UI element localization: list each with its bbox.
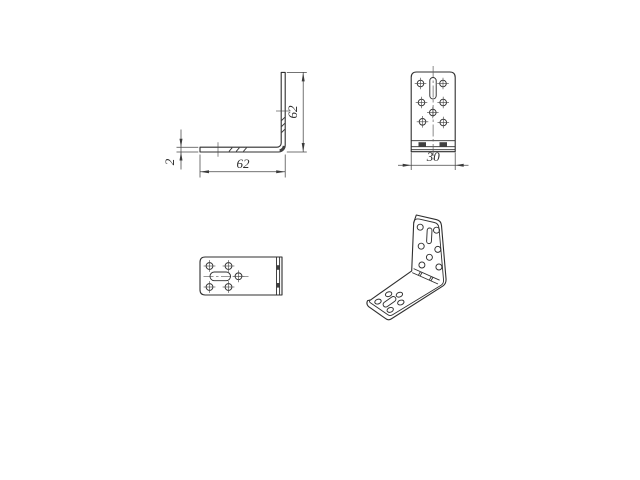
dim-height: 62 (285, 72, 307, 152)
arrowhead (403, 164, 412, 167)
slot-edge-mark (419, 142, 427, 146)
front-view: 30 (398, 66, 469, 170)
arrowhead (302, 72, 305, 81)
dim-height-label: 62 (285, 105, 300, 119)
dim-length-label: 62 (237, 156, 251, 171)
isometric-view (367, 215, 446, 320)
slot-edge-mark (277, 265, 280, 270)
top-view (200, 257, 282, 295)
dim-width: 30 (398, 149, 469, 170)
arrowhead (276, 170, 285, 173)
dim-width-label: 30 (426, 149, 441, 164)
arrowhead (302, 143, 305, 152)
arrowhead (455, 164, 464, 167)
arrowhead (180, 152, 183, 161)
technical-drawing-canvas: 62 62 2 (0, 0, 640, 480)
drawing-sheet: 62 62 2 (0, 0, 640, 480)
side-view-profile (200, 72, 285, 152)
slot-edge-mark (440, 142, 448, 146)
dim-length: 62 (200, 155, 285, 178)
arrowhead (180, 139, 183, 148)
dim-thickness-label: 2 (162, 158, 177, 165)
arrowhead (200, 170, 209, 173)
dim-thickness: 2 (162, 130, 198, 170)
side-view: 62 62 2 (162, 72, 307, 177)
slot-edge-mark (277, 283, 280, 288)
